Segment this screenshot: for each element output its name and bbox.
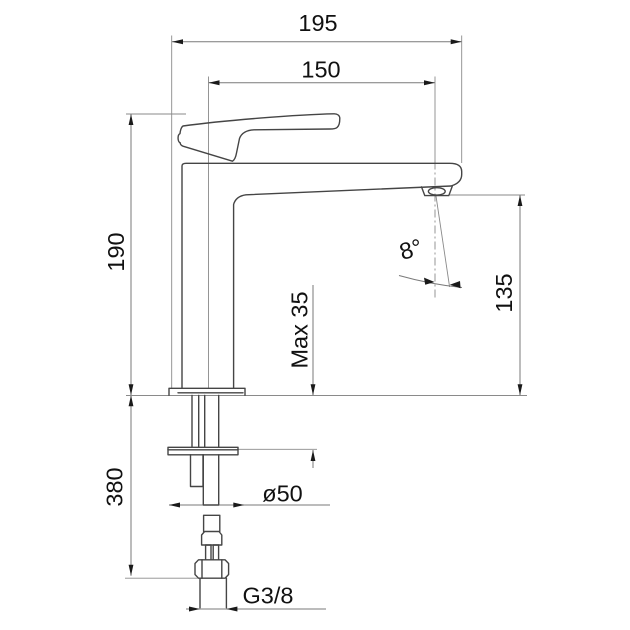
dim-label-angle: 8° — [396, 234, 425, 265]
dim-label-380: 380 — [102, 467, 128, 506]
mounting-washer-nut — [168, 447, 238, 505]
dim-190: 190 — [103, 114, 186, 395]
dim-dia50: ø50 — [169, 481, 330, 508]
dim-g38: G3/8 — [186, 583, 326, 612]
dim-max35: Max 35 — [237, 285, 317, 468]
dim-label-g38: G3/8 — [243, 583, 294, 609]
dim-angle-8deg: 8° — [396, 162, 462, 301]
dim-label-max35: Max 35 — [287, 291, 313, 368]
mounting-shank — [192, 396, 219, 448]
dim-label-135: 135 — [491, 273, 517, 312]
dim-label-dia50: ø50 — [262, 481, 303, 507]
technical-drawing-canvas: 195 150 190 380 135 Max — [0, 0, 630, 630]
dim-label-150: 150 — [301, 57, 340, 83]
faucet-handle — [178, 114, 340, 161]
dim-150: 150 — [209, 57, 436, 389]
dim-label-195: 195 — [298, 10, 337, 36]
dim-380: 380 — [102, 395, 200, 578]
dim-label-190: 190 — [103, 232, 129, 271]
dim-135: 135 — [450, 195, 525, 395]
supply-hose-connector — [195, 515, 229, 608]
base-flange — [169, 388, 245, 395]
faucet-dimension-drawing: 195 150 190 380 135 Max — [0, 0, 630, 630]
faucet-spout-body — [182, 163, 462, 388]
